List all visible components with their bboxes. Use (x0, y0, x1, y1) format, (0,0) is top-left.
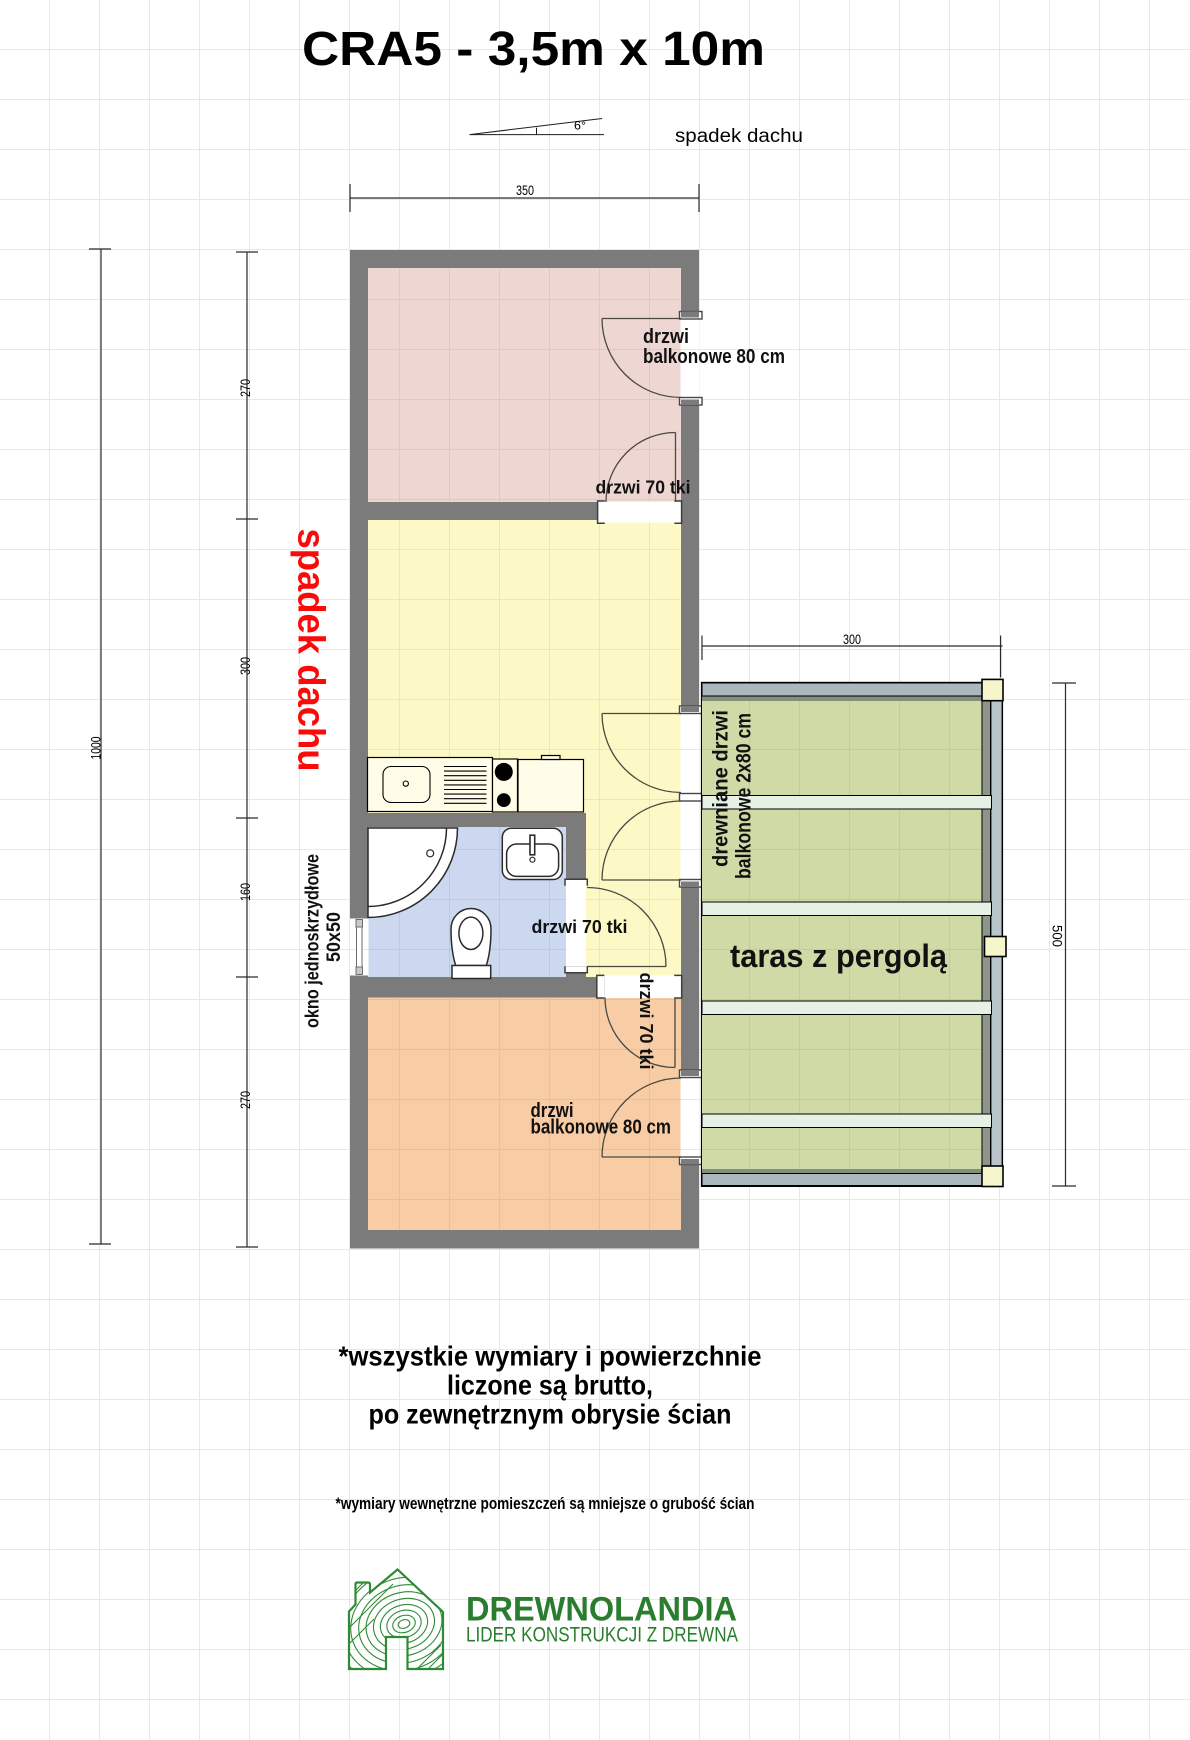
svg-text:270: 270 (237, 1091, 253, 1109)
svg-text:300: 300 (237, 657, 253, 675)
svg-text:LIDER KONSTRUKCJI Z DREWNA: LIDER KONSTRUKCJI Z DREWNA (466, 1624, 738, 1647)
svg-text:drewniane drzwibalkonowe 2x80: drewniane drzwibalkonowe 2x80 cm (710, 710, 756, 879)
svg-text:160: 160 (237, 883, 253, 901)
svg-text:270: 270 (237, 379, 253, 397)
svg-text:*wymiary wewnętrzne pomieszcze: *wymiary wewnętrzne pomieszczeń są mniej… (336, 1494, 755, 1513)
svg-text:spadek dachu: spadek dachu (290, 529, 332, 772)
svg-text:500: 500 (1050, 925, 1066, 947)
svg-text:taras z pergolą: taras z pergolą (730, 938, 947, 974)
svg-text:drzwi 70 tki: drzwi 70 tki (636, 973, 656, 1070)
svg-text:6°: 6° (574, 119, 586, 133)
svg-text:350: 350 (516, 182, 534, 198)
svg-text:spadek dachu: spadek dachu (675, 126, 803, 147)
svg-text:drzwi 70 tki: drzwi 70 tki (596, 478, 691, 498)
svg-text:300: 300 (843, 631, 861, 647)
svg-text:drzwi 70 tki: drzwi 70 tki (532, 917, 628, 937)
svg-text:1000: 1000 (88, 736, 104, 759)
svg-text:CRA5 - 3,5m x 10m: CRA5 - 3,5m x 10m (302, 23, 765, 76)
